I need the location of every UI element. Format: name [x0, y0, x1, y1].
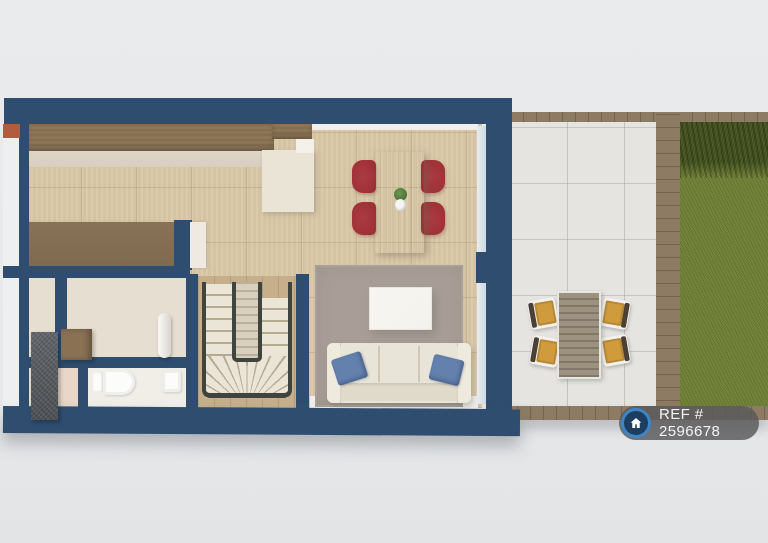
coffee-table: [369, 287, 432, 330]
wall-top: [4, 98, 510, 124]
garden-hedge: [680, 120, 768, 178]
sofa-backrest: [340, 383, 458, 401]
kitchen-peninsula: [262, 150, 314, 212]
toilet-bowl: [103, 369, 135, 395]
floorplan-canvas: REF # 2596678: [0, 0, 768, 543]
wooden-cabinet: [61, 329, 92, 360]
ref-badge: REF # 2596678: [619, 406, 759, 440]
toilet-tank: [93, 372, 103, 392]
dining-chair: [421, 202, 445, 235]
outdoor-chair: [599, 297, 632, 330]
kitchen-counter-step: [272, 124, 312, 139]
garden-fence-left: [668, 112, 680, 414]
dining-chair: [421, 160, 445, 193]
kitchen-counter-run: [26, 124, 274, 151]
patio-border-right: [656, 112, 668, 414]
patio-border-top: [510, 112, 768, 122]
outdoor-chair-seat: [534, 300, 557, 326]
peninsula-white-edge: [296, 139, 314, 153]
wall-divider-kitchen-hall: [3, 266, 190, 278]
kitchen-island-end-panel: [190, 222, 206, 268]
stone-storage-column: [31, 332, 58, 420]
dining-chair: [352, 202, 376, 235]
white-column: [158, 313, 171, 358]
dining-chair: [352, 160, 376, 193]
house-icon: [621, 408, 651, 438]
staircase-room: [198, 276, 296, 408]
wash-basin: [162, 370, 181, 392]
outdoor-table: [557, 291, 601, 379]
outdoor-chair: [599, 334, 632, 367]
outdoor-chair: [527, 297, 560, 330]
wall-stairs-right: [296, 274, 309, 408]
wall-stairs-left: [186, 274, 198, 408]
kitchen-island: [28, 222, 176, 268]
table-vase: [395, 199, 406, 211]
kitchen-counter-edge: [26, 151, 266, 167]
wall-right: [486, 98, 512, 432]
stair-rail-inner: [232, 282, 262, 362]
outdoor-chair-seat: [536, 339, 559, 365]
toilet: [93, 369, 135, 395]
wall-bottom: [3, 406, 520, 436]
ref-badge-label: REF # 2596678: [659, 406, 759, 440]
wall-wc-left: [78, 361, 88, 409]
roof-terracotta-corner: [3, 124, 20, 138]
